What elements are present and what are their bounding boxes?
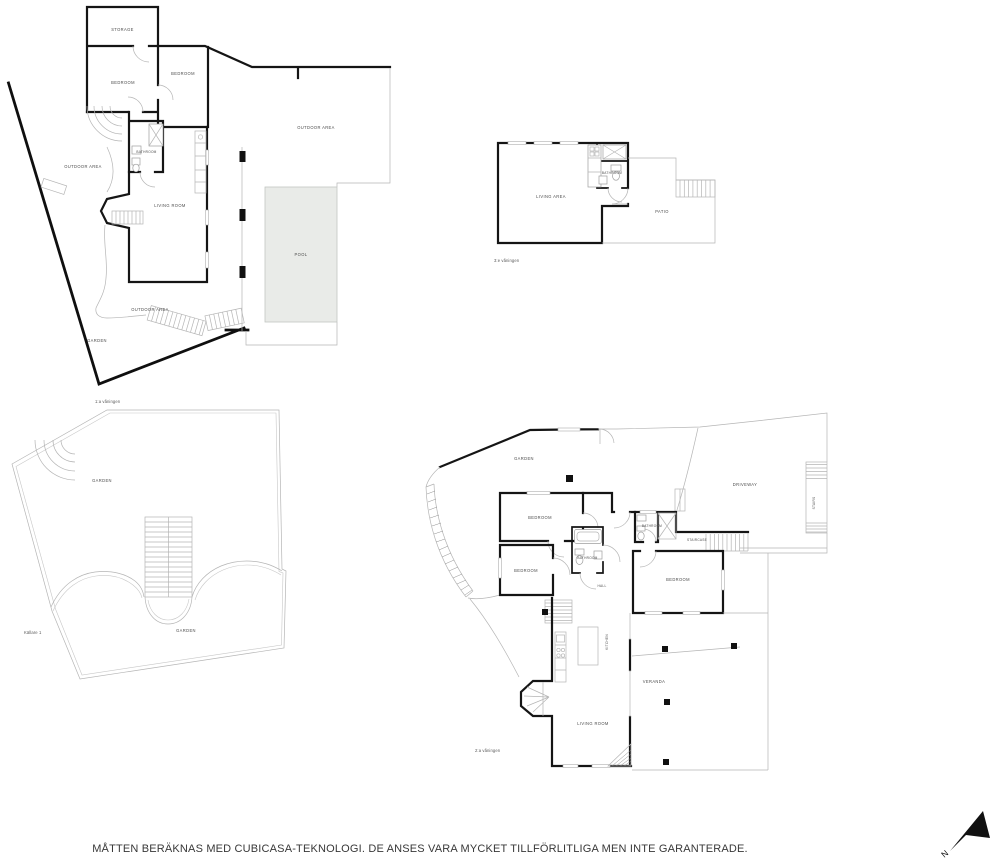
post — [731, 643, 737, 649]
planter — [41, 178, 67, 194]
plan-basement: GARDEN GARDEN Källare 1 — [12, 410, 286, 679]
fireplace — [608, 744, 631, 766]
room-label-living-room: LIVING ROOM — [577, 721, 609, 726]
room-label-driveway: DRIVEWAY — [733, 482, 757, 487]
post — [240, 266, 246, 278]
toilet-bowl — [133, 164, 139, 172]
floorplan-svg: STORAGE BEDROOM BEDROOM BATHROOM LIVING … — [0, 0, 1000, 864]
patio-stairs — [676, 180, 715, 197]
room-label-garden: GARDEN — [176, 628, 196, 633]
floor-name: Källare 1 — [24, 630, 42, 635]
toilet-bowl — [638, 532, 644, 540]
floor-name: 3:e våningen — [494, 258, 520, 263]
post — [240, 209, 246, 221]
kitchen-counter — [195, 131, 206, 193]
room-label-garden: GARDEN — [514, 456, 534, 461]
bathtub — [575, 530, 602, 544]
terrain-line — [51, 561, 282, 624]
room-label-outdoor-area: OUTDOOR AREA — [64, 164, 102, 169]
post — [566, 475, 573, 482]
terraced-steps — [426, 467, 519, 677]
outdoor-stairs — [205, 308, 244, 330]
room-label-bedroom: BEDROOM — [528, 515, 552, 520]
post — [542, 609, 548, 615]
room-label-kitchen: KITCHEN — [605, 634, 609, 650]
corner-steps — [35, 440, 75, 480]
room-label-pool: POOL — [295, 252, 308, 257]
floor-name: 2:a våningen — [475, 748, 501, 753]
room-label-stairs: STAIRS — [812, 497, 816, 510]
north-compass: N — [939, 811, 990, 860]
north-arrow-icon — [950, 811, 990, 851]
room-label-storage: STORAGE — [111, 27, 134, 32]
room-label-hall: HALL — [598, 584, 607, 588]
room-label-bathroom: BATHROOM — [642, 524, 662, 528]
plan-third-floor: LIVING AREA BATHROOM PATIO 3:e våningen — [494, 142, 715, 264]
driveway-stairs — [806, 462, 827, 533]
room-label-living-room: LIVING ROOM — [154, 203, 186, 208]
veranda-outline — [632, 553, 768, 770]
room-label-garden: GARDEN — [87, 338, 107, 343]
post — [662, 646, 668, 652]
room-label-veranda: VERANDA — [643, 679, 665, 684]
hall-walls — [583, 493, 635, 512]
storage-walls — [87, 7, 158, 112]
room-label-bedroom: BEDROOM — [111, 80, 135, 85]
floorplan-sheet: STORAGE BEDROOM BEDROOM BATHROOM LIVING … — [0, 0, 1000, 864]
north-label: N — [939, 848, 950, 860]
room-label-bedroom: BEDROOM — [171, 71, 195, 76]
post — [663, 759, 669, 765]
room-label-bathroom: BATHROOM — [136, 150, 156, 154]
sink — [637, 515, 646, 521]
room-label-bedroom: BEDROOM — [666, 577, 690, 582]
room-label-garden: GARDEN — [92, 478, 112, 483]
floor-name: 1:a våningen — [95, 399, 121, 404]
bedroom-walls — [87, 46, 208, 127]
room-label-bathroom: BATHROOM — [577, 556, 597, 560]
room-label-living-area: LIVING AREA — [536, 194, 566, 199]
room-label-outdoor-area: OUTDOOR AREA — [297, 125, 335, 130]
post — [664, 699, 670, 705]
kitchen-living-walls — [521, 598, 631, 766]
garden-wall — [440, 429, 598, 467]
room-label-bathroom: BATHROOM — [602, 171, 622, 175]
bedroom-walls — [633, 551, 723, 613]
room-label-bedroom: BEDROOM — [514, 568, 538, 573]
kitchen-island — [578, 627, 598, 665]
room-label-patio: PATIO — [655, 209, 669, 214]
post — [240, 151, 246, 162]
room-label-staircase: STAIRCASE — [687, 538, 707, 542]
washer — [599, 176, 607, 184]
plan-second-floor: GARDEN BEDROOM BEDROOM BATHROOM BATHROOM… — [426, 413, 827, 770]
toilet-tank — [575, 549, 584, 555]
room-label-outdoor-area: OUTDOOR AREA — [131, 307, 169, 312]
disclaimer-text: MÅTTEN BERÄKNAS MED CUBICASA-TEKNOLOGI. … — [92, 842, 748, 855]
plan-first-floor: STORAGE BEDROOM BEDROOM BATHROOM LIVING … — [9, 7, 391, 404]
site-outline — [12, 410, 286, 679]
